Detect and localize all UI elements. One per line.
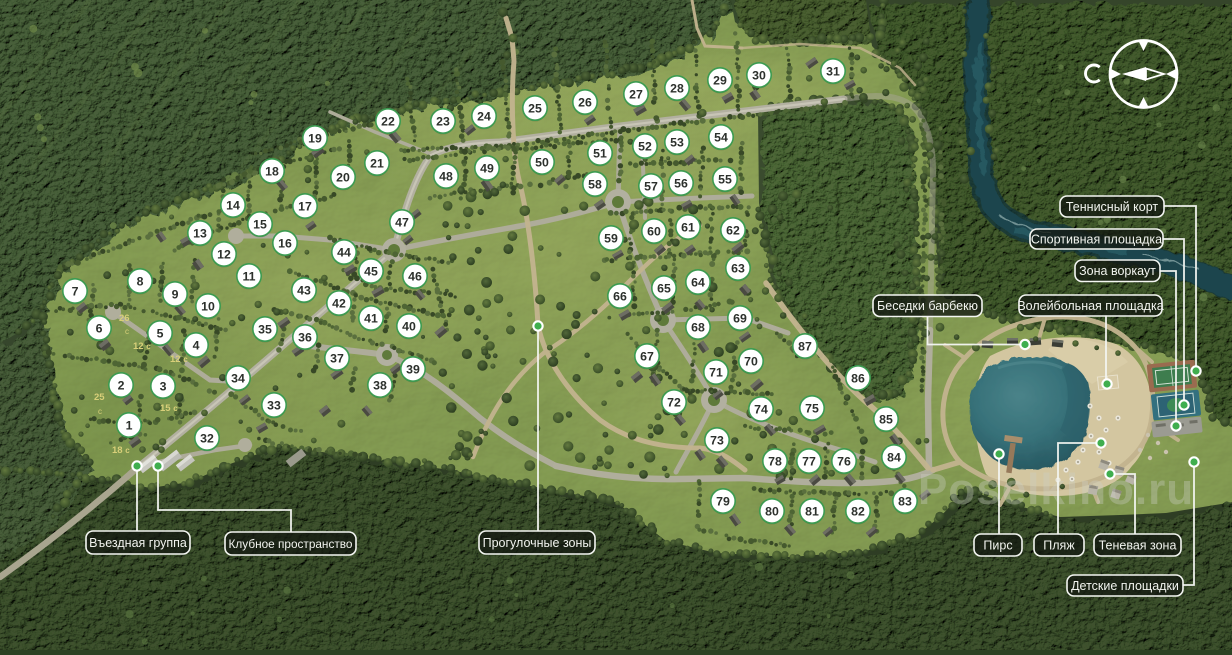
svg-text:57: 57: [644, 179, 658, 193]
svg-text:Зона воркаут: Зона воркаут: [1079, 264, 1156, 278]
svg-text:23: 23: [436, 114, 450, 128]
svg-text:Теневая зона: Теневая зона: [1099, 538, 1177, 552]
svg-text:Клубное пространство: Клубное пространство: [229, 537, 353, 551]
svg-text:12 с: 12 с: [170, 354, 188, 365]
svg-text:7: 7: [72, 284, 79, 298]
svg-text:48: 48: [439, 169, 453, 183]
svg-text:67: 67: [640, 349, 654, 363]
svg-text:28: 28: [670, 81, 684, 95]
svg-text:40: 40: [402, 319, 416, 333]
svg-text:37: 37: [330, 351, 344, 365]
svg-text:30: 30: [752, 68, 766, 82]
svg-text:19: 19: [308, 131, 322, 145]
svg-text:33: 33: [267, 398, 281, 412]
svg-text:51: 51: [593, 146, 607, 160]
svg-text:74: 74: [754, 402, 768, 416]
svg-text:43: 43: [297, 283, 311, 297]
svg-text:50: 50: [535, 155, 549, 169]
svg-text:78: 78: [768, 454, 782, 468]
svg-text:13: 13: [193, 226, 207, 240]
svg-text:29: 29: [713, 73, 727, 87]
svg-text:25: 25: [94, 392, 105, 403]
svg-text:15 с: 15 с: [160, 403, 178, 414]
svg-text:38: 38: [373, 378, 387, 392]
svg-text:6: 6: [96, 321, 103, 335]
svg-text:46: 46: [408, 269, 422, 283]
svg-text:26: 26: [119, 313, 130, 324]
svg-text:11: 11: [243, 269, 256, 283]
svg-text:Прогулочные зоны: Прогулочные зоны: [483, 536, 592, 550]
svg-text:56: 56: [674, 176, 688, 190]
svg-text:49: 49: [480, 161, 494, 175]
svg-text:62: 62: [726, 223, 740, 237]
svg-text:69: 69: [733, 311, 747, 325]
svg-text:77: 77: [802, 454, 816, 468]
svg-text:52: 52: [638, 139, 652, 153]
svg-text:53: 53: [670, 135, 684, 149]
svg-text:83: 83: [898, 494, 912, 508]
svg-text:70: 70: [744, 354, 758, 368]
svg-text:1: 1: [126, 418, 133, 432]
svg-text:79: 79: [716, 494, 730, 508]
svg-text:12 с: 12 с: [133, 341, 151, 352]
svg-text:Poselkino.ru: Poselkino.ru: [918, 465, 1194, 514]
svg-text:84: 84: [887, 450, 901, 464]
svg-text:66: 66: [613, 289, 627, 303]
svg-text:18 с: 18 с: [112, 445, 130, 456]
svg-text:Теннисный корт: Теннисный корт: [1066, 200, 1159, 214]
svg-text:81: 81: [805, 504, 819, 518]
svg-text:47: 47: [395, 215, 409, 229]
svg-text:35: 35: [258, 322, 272, 336]
svg-text:64: 64: [691, 275, 705, 289]
svg-text:55: 55: [718, 172, 732, 186]
svg-text:44: 44: [337, 245, 351, 259]
svg-text:Спортивная площадка: Спортивная площадка: [1031, 232, 1162, 246]
svg-text:58: 58: [588, 177, 602, 191]
svg-text:36: 36: [298, 330, 312, 344]
svg-text:72: 72: [667, 395, 681, 409]
svg-text:24: 24: [477, 109, 491, 123]
svg-text:41: 41: [364, 311, 378, 325]
svg-text:76: 76: [837, 454, 851, 468]
svg-text:25: 25: [528, 101, 542, 115]
svg-text:34: 34: [231, 371, 245, 385]
svg-text:Беседки барбекю: Беседки барбекю: [877, 299, 978, 313]
svg-text:10: 10: [201, 299, 215, 313]
svg-text:22: 22: [381, 114, 395, 128]
svg-text:8: 8: [137, 274, 144, 288]
svg-text:Пляж: Пляж: [1043, 538, 1075, 552]
svg-text:32: 32: [200, 431, 214, 445]
svg-text:87: 87: [798, 339, 812, 353]
svg-text:71: 71: [709, 365, 723, 379]
svg-text:14: 14: [226, 198, 240, 212]
svg-text:Детские площадки: Детские площадки: [1071, 579, 1179, 593]
svg-text:Пирс: Пирс: [983, 538, 1012, 552]
svg-text:5: 5: [157, 326, 164, 340]
svg-text:2: 2: [118, 378, 125, 392]
svg-text:86: 86: [851, 371, 865, 385]
svg-text:12: 12: [217, 247, 231, 261]
svg-text:85: 85: [879, 412, 893, 426]
svg-text:45: 45: [364, 264, 378, 278]
svg-text:61: 61: [681, 220, 695, 234]
svg-text:68: 68: [691, 320, 705, 334]
svg-text:Волейбольная площадка: Волейбольная площадка: [1017, 299, 1163, 313]
svg-text:18: 18: [265, 164, 279, 178]
svg-text:9: 9: [172, 287, 179, 301]
svg-text:63: 63: [731, 261, 745, 275]
svg-text:31: 31: [826, 64, 840, 78]
svg-text:80: 80: [765, 504, 779, 518]
svg-text:17: 17: [298, 199, 312, 213]
svg-text:54: 54: [714, 130, 728, 144]
svg-text:15: 15: [253, 217, 267, 231]
svg-text:с: с: [98, 407, 102, 416]
svg-text:27: 27: [629, 87, 643, 101]
svg-text:75: 75: [805, 401, 819, 415]
svg-text:65: 65: [657, 281, 671, 295]
svg-text:26: 26: [578, 95, 592, 109]
svg-text:21: 21: [370, 156, 384, 170]
svg-text:73: 73: [710, 433, 724, 447]
svg-text:59: 59: [604, 231, 618, 245]
svg-text:16: 16: [278, 236, 292, 250]
svg-text:с: с: [125, 327, 129, 336]
svg-text:82: 82: [851, 504, 865, 518]
svg-text:Въездная группа: Въездная группа: [89, 536, 187, 550]
svg-text:39: 39: [406, 362, 420, 376]
svg-text:3: 3: [160, 379, 167, 393]
svg-text:42: 42: [332, 296, 346, 310]
svg-text:20: 20: [336, 170, 350, 184]
svg-text:60: 60: [647, 224, 661, 238]
svg-text:4: 4: [193, 338, 200, 352]
